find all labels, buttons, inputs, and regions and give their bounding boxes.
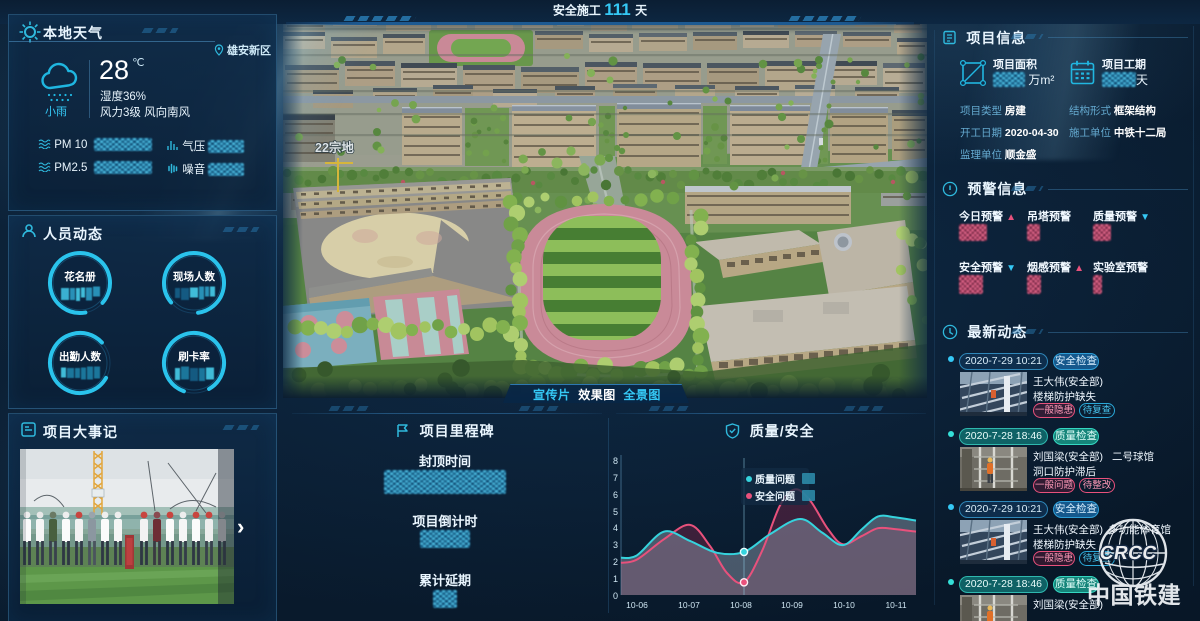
svg-text:现场人数: 现场人数 — [173, 270, 215, 283]
svg-text:质量问题: 质量问题 — [755, 473, 796, 486]
svg-text:10-11: 10-11 — [885, 600, 906, 610]
svg-text:安全问题: 安全问题 — [755, 490, 796, 503]
svg-text:出勤人数: 出勤人数 — [59, 350, 101, 363]
svg-text:1: 1 — [613, 574, 618, 584]
svg-text:10-09: 10-09 — [781, 600, 803, 610]
svg-text:5: 5 — [613, 507, 618, 517]
svg-text:2: 2 — [613, 557, 618, 567]
svg-text:10-08: 10-08 — [730, 600, 752, 610]
svg-text:10-07: 10-07 — [678, 600, 700, 610]
svg-text:10-10: 10-10 — [833, 600, 855, 610]
svg-text:花名册: 花名册 — [64, 270, 96, 283]
svg-text:中国铁建: 中国铁建 — [1087, 582, 1181, 608]
svg-text:10-06: 10-06 — [626, 600, 648, 610]
svg-text:3: 3 — [613, 540, 618, 550]
svg-text:7: 7 — [613, 473, 618, 483]
svg-text:刷卡率: 刷卡率 — [178, 350, 210, 363]
svg-text:8: 8 — [613, 456, 618, 466]
svg-text:6: 6 — [613, 490, 618, 500]
svg-text:CRCC: CRCC — [1098, 543, 1159, 564]
svg-text:0: 0 — [613, 591, 618, 601]
svg-text:4: 4 — [613, 523, 618, 533]
